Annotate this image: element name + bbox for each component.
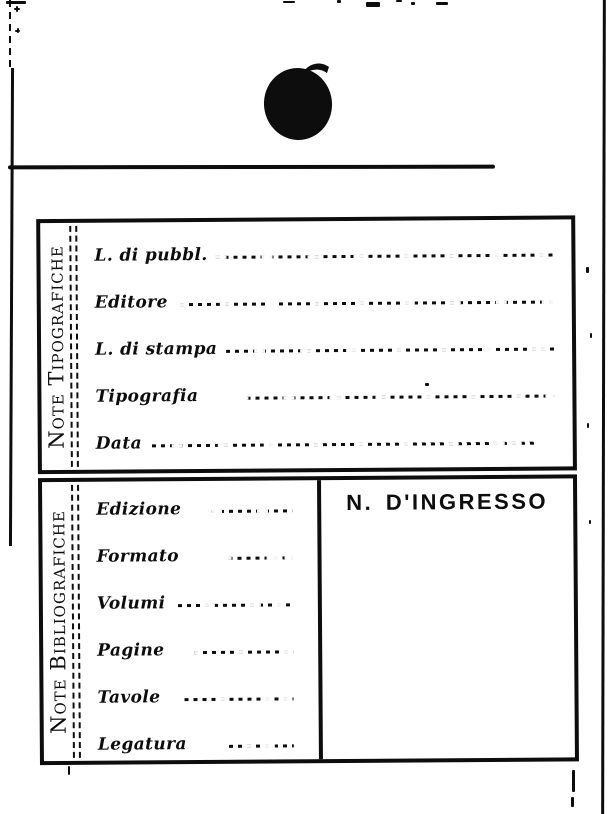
field-row-editore: Editore [81, 284, 566, 334]
dotted-fill-line [229, 744, 294, 747]
side-divider [71, 485, 81, 758]
section-title-bibliografiche: Note Bibliografiche [45, 510, 71, 734]
field-label: Data [96, 433, 142, 453]
field-row-legatura: Legatura [84, 728, 306, 777]
side-label-column: Note Tipografiche [40, 223, 71, 470]
ingresso-heading: N. D'INGRESSO [321, 488, 573, 516]
field-row-pagine: Pagine [83, 634, 305, 683]
dotted-fill-line [152, 442, 537, 448]
dotted-fill-line [226, 348, 554, 353]
dotted-fill-line [184, 697, 293, 701]
field-row-l-di-pubbl: L. di pubbl. [80, 237, 565, 287]
dotted-fill-line [178, 603, 293, 607]
catalog-card-scan: Note Tipografiche L. di pubbl. Editore L… [0, 0, 610, 814]
dotted-fill-line [180, 301, 554, 307]
field-label: Editore [95, 292, 168, 313]
bibliografiche-fields: Edizione Formato Volumi Pagine Tavole [82, 480, 306, 761]
field-label: L. di pubbl. [94, 245, 207, 266]
dotted-fill-line [246, 395, 554, 400]
field-row-tavole: Tavole [83, 681, 305, 730]
ingresso-panel: N. D'INGRESSO [317, 478, 575, 759]
field-label: Formato [96, 546, 179, 567]
section-note-bibliografiche: Note Bibliografiche Edizione Formato Vol… [38, 474, 579, 765]
field-row-formato: Formato [82, 540, 304, 589]
dotted-fill-line [211, 509, 292, 513]
dotted-fill-line [229, 556, 293, 559]
field-row-volumi: Volumi [83, 587, 305, 636]
field-row-tipografia: Tipografia [81, 378, 566, 428]
tipografiche-fields: L. di pubbl. Editore L. di stampa Tipogr… [80, 219, 567, 469]
field-label: Legatura [98, 734, 187, 755]
field-label: Tipografia [95, 386, 198, 407]
field-row-l-di-stampa: L. di stampa [81, 331, 566, 381]
field-label: Pagine [97, 640, 164, 660]
dotted-fill-line [194, 650, 293, 654]
field-label: Edizione [96, 499, 181, 520]
field-label: Volumi [97, 593, 166, 613]
field-row-data: Data [82, 425, 567, 475]
section-title-tipografiche: Note Tipografiche [43, 245, 68, 449]
section-note-tipografiche: Note Tipografiche L. di pubbl. Editore L… [36, 215, 577, 474]
side-divider [69, 226, 79, 467]
field-label: Tavole [97, 687, 160, 707]
side-label-column: Note Bibliografiche [42, 482, 73, 761]
dotted-fill-line [216, 254, 554, 259]
field-row-edizione: Edizione [82, 493, 304, 542]
card-body: Note Tipografiche L. di pubbl. Editore L… [0, 0, 610, 814]
field-label: L. di stampa [95, 339, 217, 360]
